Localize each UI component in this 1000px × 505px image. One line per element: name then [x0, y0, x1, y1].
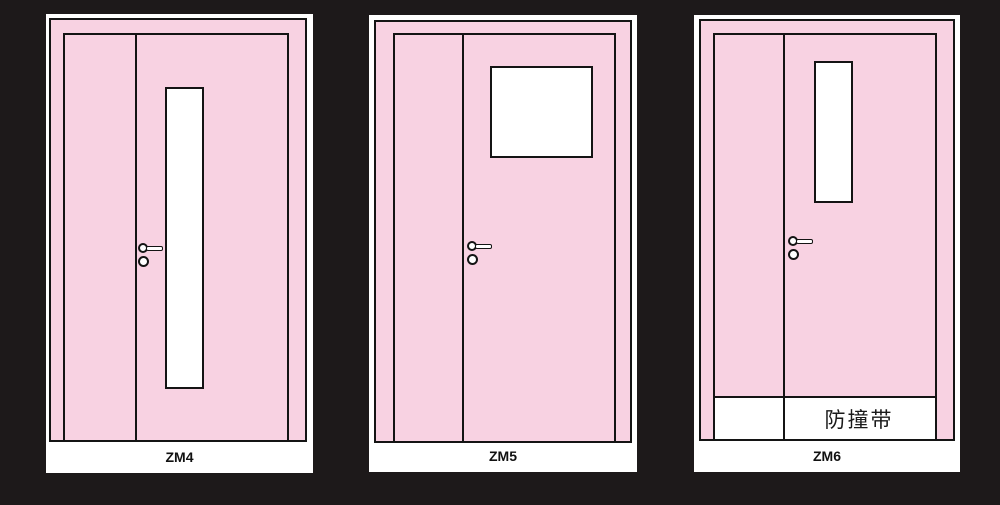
anti-collision-band: 防撞带: [715, 396, 935, 439]
door-label: ZM5: [369, 442, 637, 472]
door-leaves: [393, 33, 616, 443]
lock-cylinder-icon: [467, 254, 478, 265]
door-label: ZM4: [46, 443, 313, 473]
leaf-divider: [462, 35, 464, 441]
door-unit-zm5: ZM5: [369, 15, 637, 472]
door-leaves: 防撞带: [713, 33, 937, 441]
door-label: ZM6: [694, 442, 960, 472]
leaf-divider: [783, 35, 785, 439]
door-leaves: [63, 33, 289, 442]
lock-cylinder-icon: [138, 256, 149, 267]
handle-lever-icon: [796, 239, 813, 244]
door-frame: [49, 18, 307, 442]
door-frame: 防撞带: [699, 19, 955, 441]
door-frame: [374, 20, 632, 443]
handle-lever-icon: [146, 246, 163, 251]
door-unit-zm4: ZM4: [46, 14, 313, 473]
anti-collision-band-label: 防撞带: [783, 398, 935, 439]
door-types-diagram: ZM4 ZM5: [0, 0, 1000, 505]
vision-panel-glass: [165, 87, 204, 389]
lock-cylinder-icon: [788, 249, 799, 260]
vision-panel-glass: [490, 66, 593, 158]
leaf-divider: [135, 35, 137, 440]
handle-lever-icon: [475, 244, 492, 249]
vision-panel-glass: [814, 61, 853, 203]
door-unit-zm6: 防撞带 ZM6: [694, 15, 960, 472]
